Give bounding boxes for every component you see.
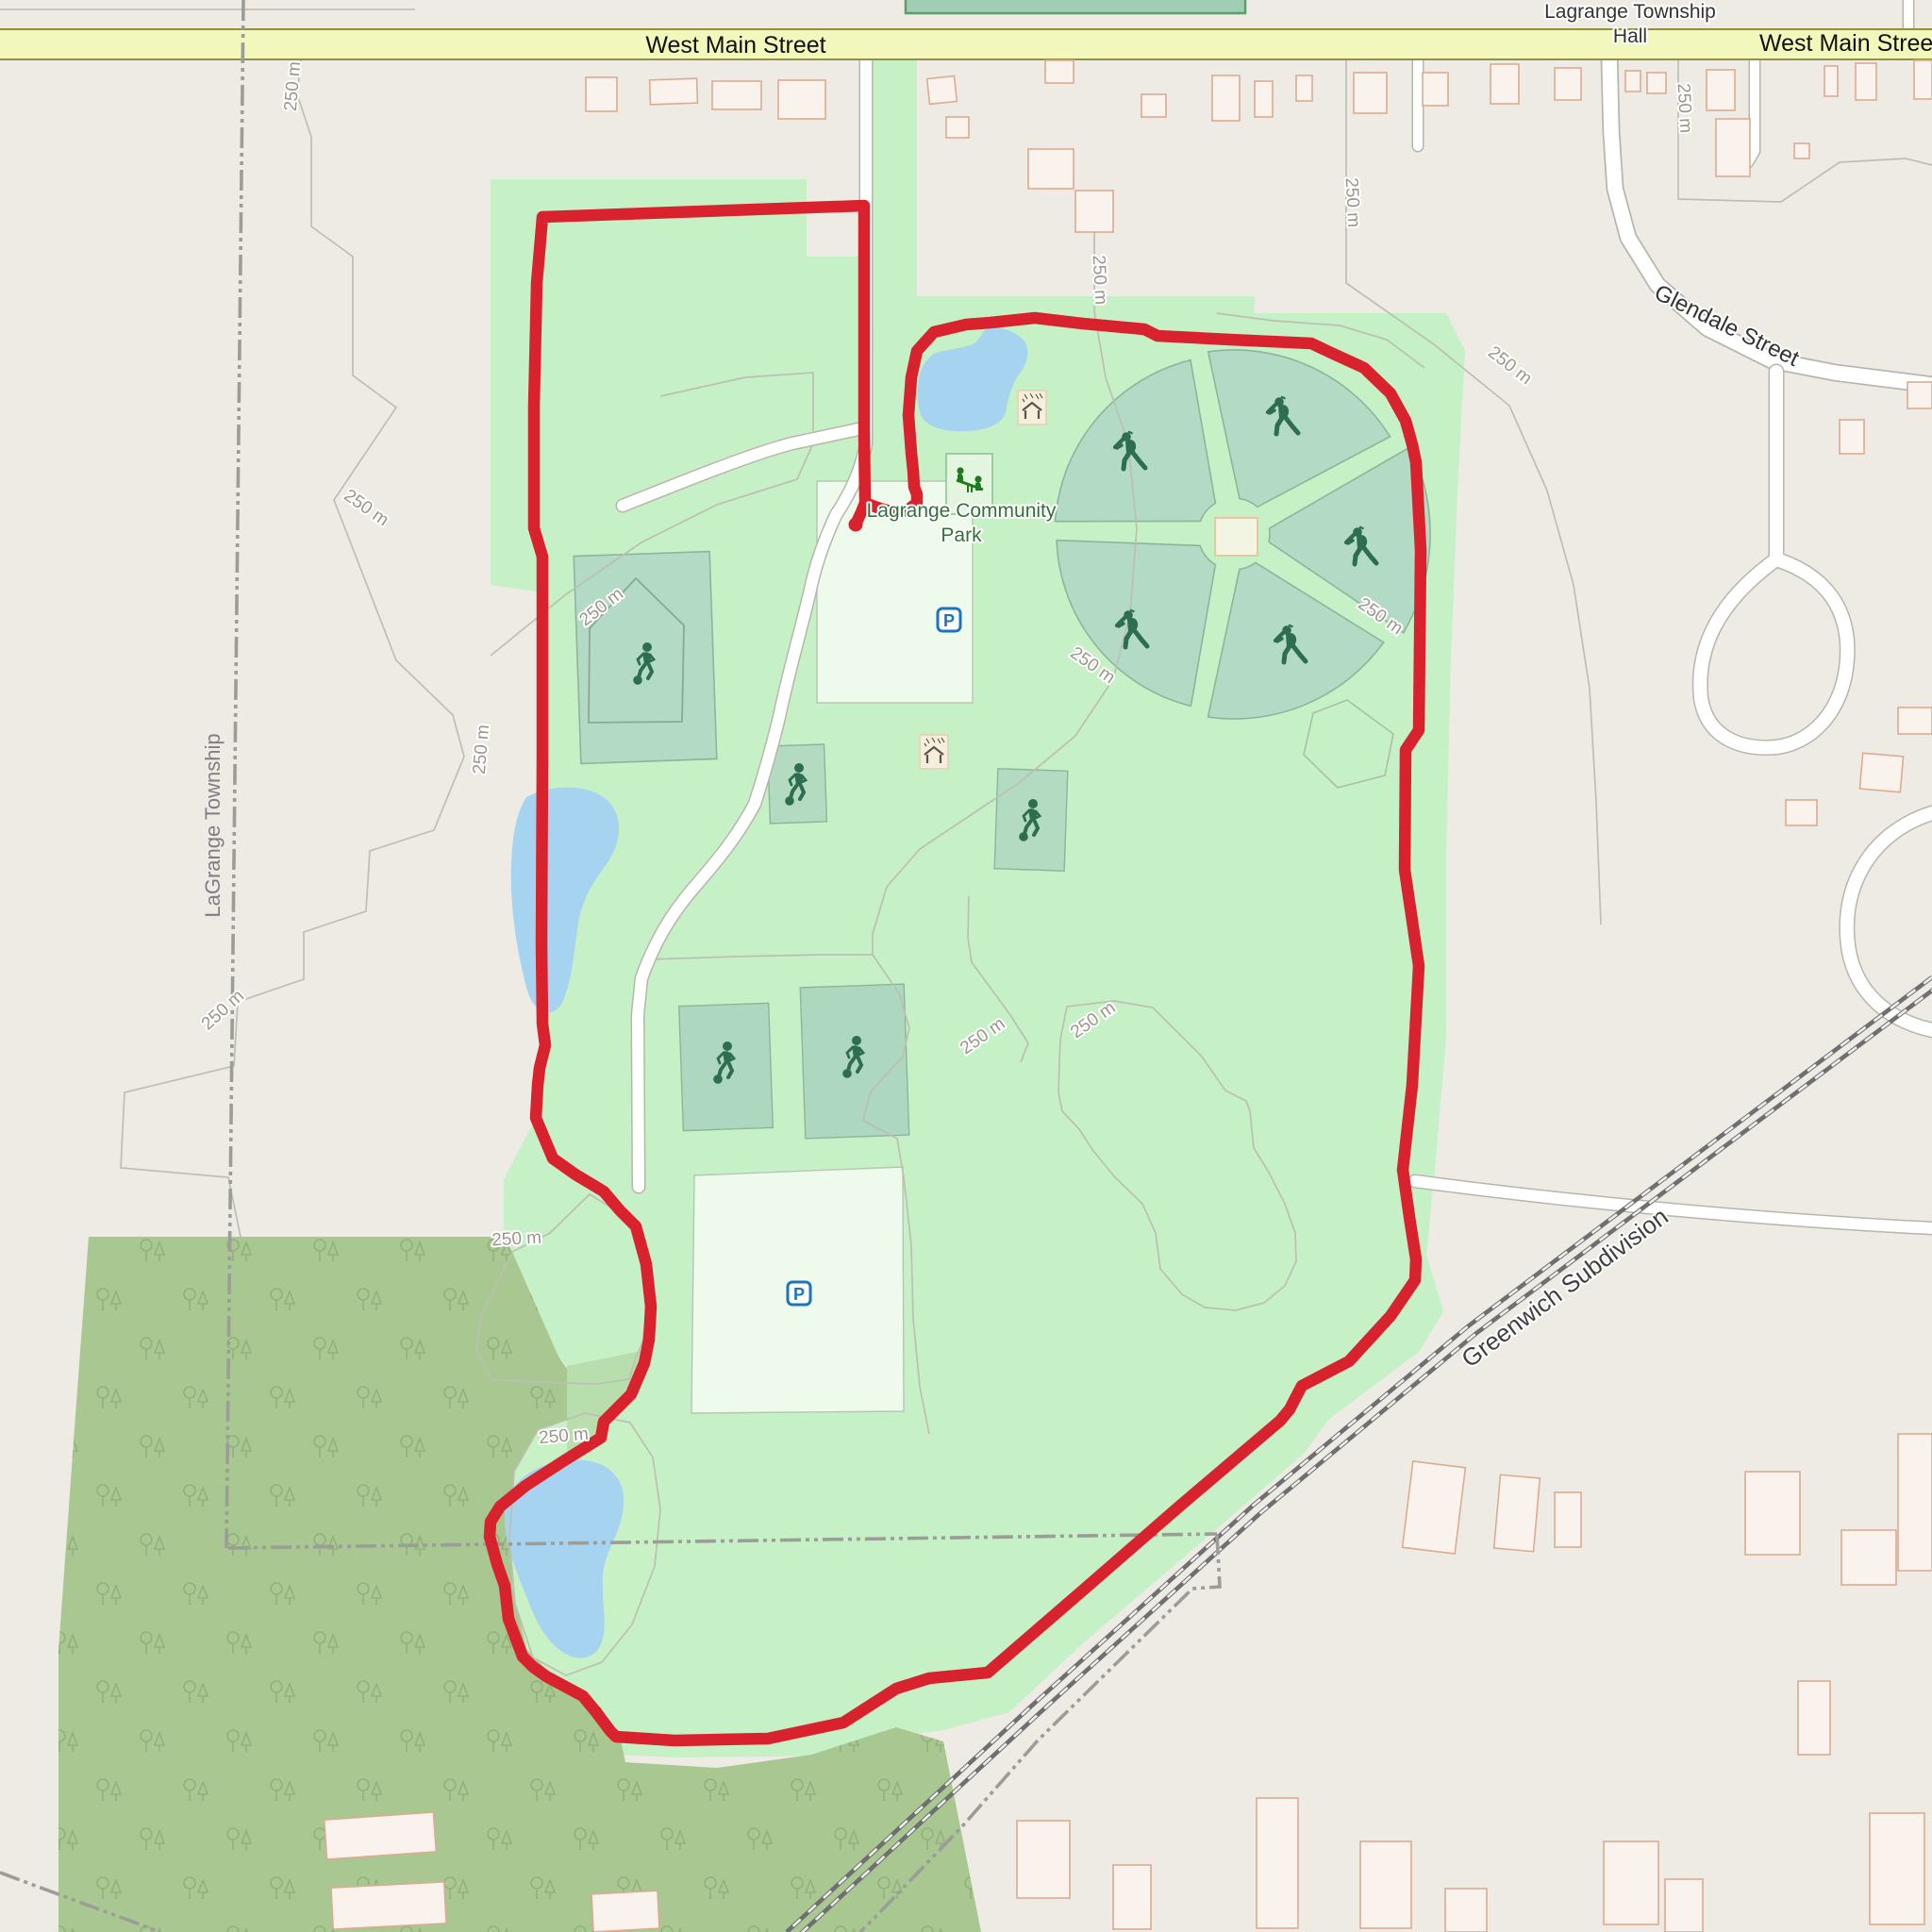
svg-text:Hall: Hall (1613, 25, 1647, 47)
svg-text:West Main Street: West Main Street (645, 32, 825, 58)
svg-text:250 m: 250 m (491, 1228, 542, 1251)
svg-text:250 m: 250 m (1341, 177, 1364, 228)
svg-text:LaGrange Township: LaGrange Township (201, 733, 225, 917)
svg-text:250 m: 250 m (1089, 255, 1111, 306)
svg-text:250 m: 250 m (1674, 83, 1696, 134)
svg-text:Park: Park (941, 525, 982, 546)
svg-text:West Main Stree: West Main Stree (1759, 30, 1932, 57)
svg-text:Lagrange Township: Lagrange Township (1544, 1, 1716, 23)
svg-text:Lagrange Community: Lagrange Community (867, 500, 1057, 522)
